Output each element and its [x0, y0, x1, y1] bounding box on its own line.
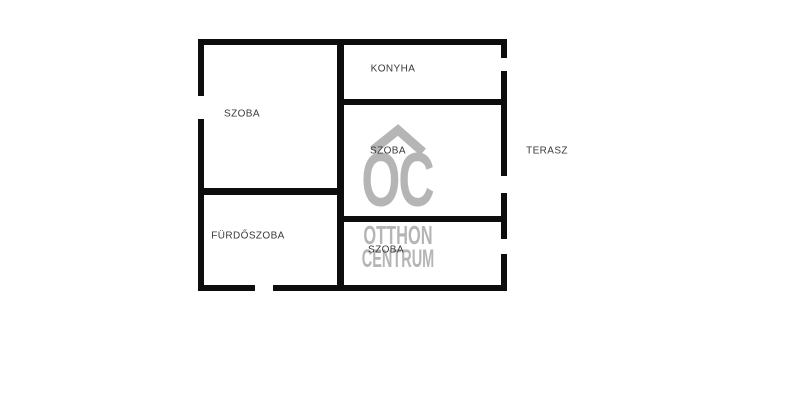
room-label-terasz: TERASZ [526, 146, 568, 157]
wall-left-lower [198, 119, 204, 291]
wall-central [337, 39, 344, 291]
wall-left-upper [198, 39, 204, 96]
room-label-szoba-middle: SZOBA [370, 146, 406, 157]
wall-right-upper [501, 39, 507, 58]
wall-bathroom-divider [198, 188, 344, 195]
room-label-szoba-bottom: SZOBA [368, 245, 404, 256]
room-label-szoba-left: SZOBA [224, 109, 260, 120]
room-label-konyha: KONYHA [371, 64, 416, 75]
wall-top [198, 39, 507, 45]
wall-right-mid-upper [501, 71, 507, 176]
wall-bottom-left [198, 285, 255, 291]
wall-konyha-bottom [344, 99, 507, 105]
room-label-furdoszoba: FÜRDŐSZOBA [211, 231, 284, 242]
floorplan-canvas: OC OTTHON CENTRUM SZOBA KONYHA SZOBA TER… [0, 0, 800, 403]
wall-bottom-right [273, 285, 507, 291]
wall-right-mid-lower [501, 193, 507, 239]
wall-right-lower [501, 254, 507, 291]
